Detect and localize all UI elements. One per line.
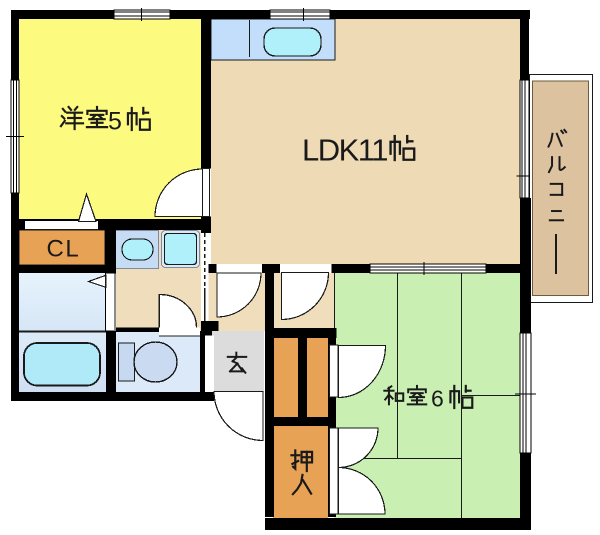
svg-text:LDK11: LDK11 bbox=[302, 133, 387, 168]
svg-text:6: 6 bbox=[431, 386, 444, 412]
svg-text:5: 5 bbox=[108, 108, 122, 136]
svg-text:CL: CL bbox=[47, 236, 81, 263]
